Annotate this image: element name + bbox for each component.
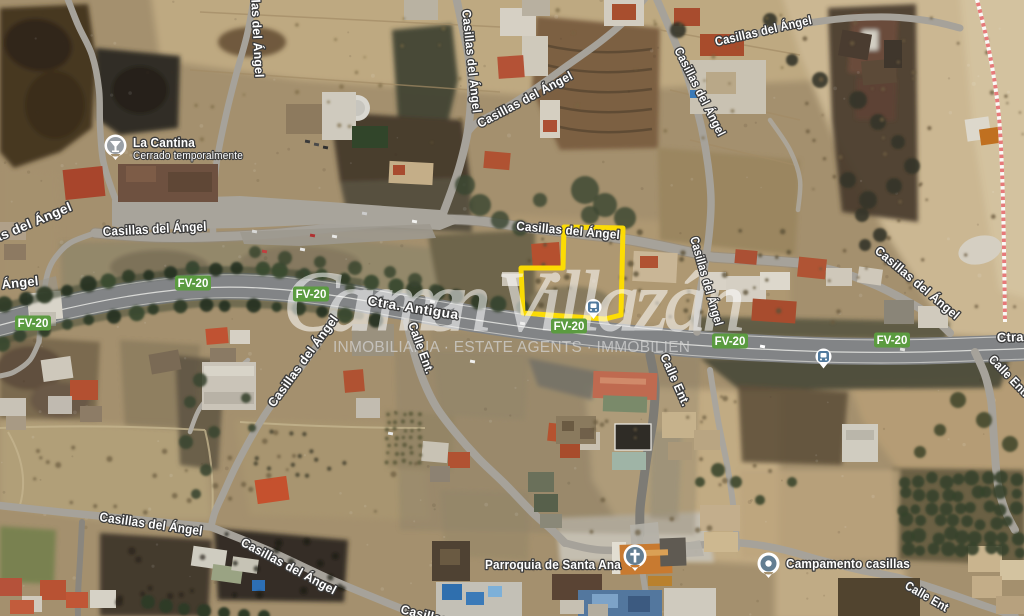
svg-text:INMOBILIARIA · ESTATE AGENTS ·: INMOBILIARIA · ESTATE AGENTS · IMMOBILIE… [333,339,691,356]
svg-text:Campamento casillas: Campamento casillas [786,556,910,571]
svg-text:FV-20: FV-20 [18,318,49,330]
svg-text:Cerrado temporalmente: Cerrado temporalmente [133,150,243,162]
svg-text:FV-20: FV-20 [877,335,908,347]
svg-text:La Cantina: La Cantina [133,135,196,150]
svg-text:FV-20: FV-20 [296,289,327,301]
svg-text:FV-20: FV-20 [715,336,746,348]
svg-text:FV-20: FV-20 [178,278,209,290]
svg-text:Ctra: Ctra [997,329,1024,345]
svg-text:FV-20: FV-20 [554,321,585,333]
svg-text:Parroquia de Santa Ana: Parroquia de Santa Ana [485,557,622,572]
